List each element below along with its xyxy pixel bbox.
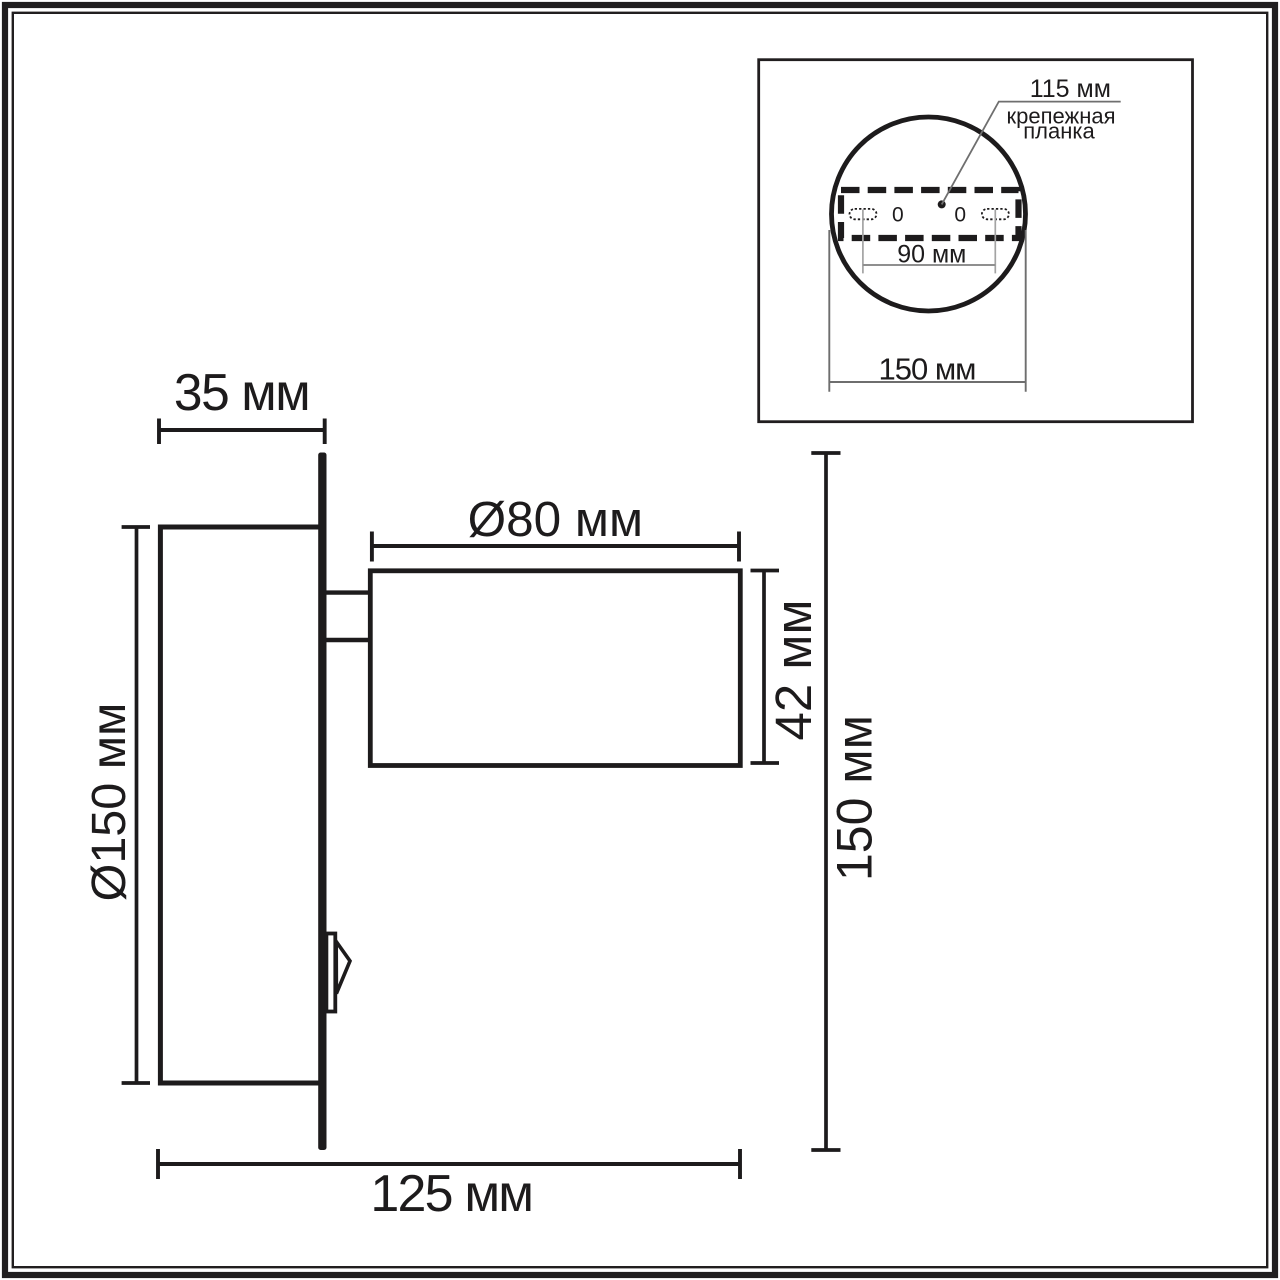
svg-text:Ø150 мм: Ø150 мм [82,703,136,902]
svg-text:35 мм: 35 мм [174,363,309,421]
svg-text:150 мм: 150 мм [879,352,976,387]
svg-text:150 мм: 150 мм [827,715,883,881]
svg-text:115 мм: 115 мм [1030,75,1111,103]
svg-text:планка: планка [1023,119,1095,144]
svg-text:90 мм: 90 мм [897,241,966,269]
svg-text:0: 0 [892,204,904,227]
svg-text:0: 0 [954,204,966,227]
svg-text:125 мм: 125 мм [370,1165,532,1223]
svg-text:Ø80 мм: Ø80 мм [468,492,643,547]
svg-text:42 мм: 42 мм [765,599,822,740]
